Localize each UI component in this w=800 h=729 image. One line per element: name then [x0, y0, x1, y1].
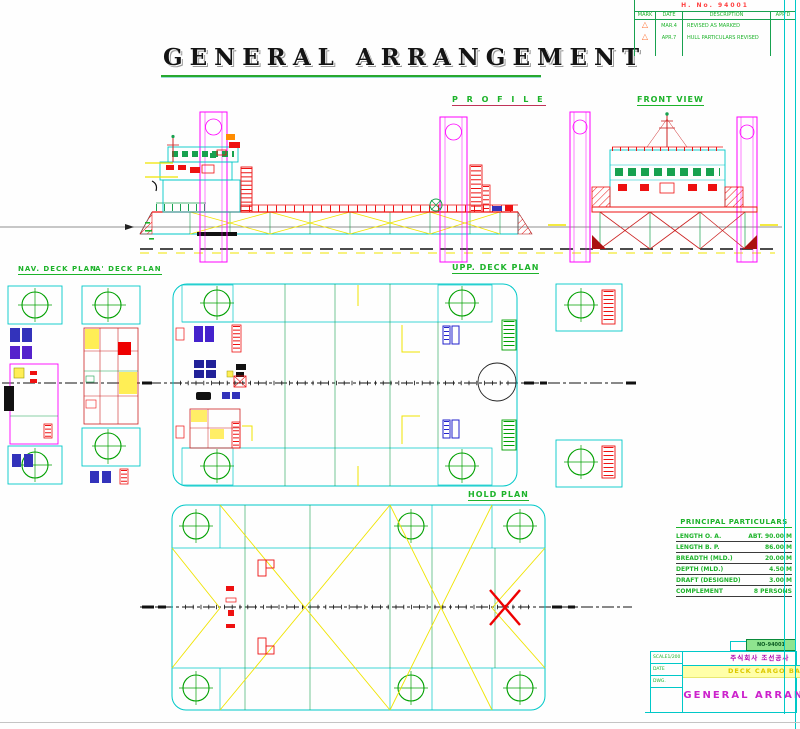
particular-name: LENGTH O. A. [676, 533, 721, 540]
vessel-type-subtitle: DECK CARGO BARGE [683, 666, 800, 678]
front-view-drawing [548, 112, 778, 262]
info-label: DWG. [653, 676, 666, 687]
info-row: DWG. [651, 676, 682, 688]
rev-col-date: DATE [656, 12, 682, 20]
particular-name: LENGTH B. P. [676, 544, 719, 551]
sheet-inner-border [784, 0, 785, 714]
page-title: GENERAL ARRANGEMENT [163, 44, 646, 71]
drawing-title: GENERAL ARRANGEMENT [683, 678, 800, 712]
title-block-info-column: SCALE 1/200 DATE DWG. [651, 652, 683, 712]
sheet-outer-border [795, 0, 796, 729]
info-row: SCALE 1/200 [651, 652, 682, 664]
particular-value: ABT. 90.00 M [748, 533, 792, 540]
particular-value: 3.00 M [769, 577, 792, 584]
particulars-row: DEPTH (MLD.) 4.50 M [676, 564, 792, 575]
profile-hull [140, 203, 532, 240]
rev-col-desc: DESCRIPTION [683, 12, 770, 20]
rev-desc: HULL PARTICULARS REVISED [683, 32, 770, 44]
particulars-row: LENGTH O. A. ABT. 90.00 M [676, 531, 792, 542]
info-value: 1/200 [667, 652, 680, 663]
rev-mark: △ [635, 32, 655, 44]
hull-number: H. No. 94001 [634, 0, 796, 12]
a-deck-plan-drawing [82, 286, 140, 484]
deck-plans-drawing [0, 276, 640, 492]
rev-appd [771, 20, 795, 32]
info-label: SCALE [653, 652, 667, 663]
particulars-row: COMPLEMENT 8 PERSONS [676, 586, 792, 597]
nav-deck-plan-drawing [4, 286, 62, 484]
particular-name: DEPTH (MLD.) [676, 566, 723, 573]
profile-and-front-view-drawing [0, 105, 800, 270]
doc-number-spacer-cell [730, 641, 747, 651]
particular-value: 4.50 M [769, 566, 792, 573]
revision-triangle-icon: △ [642, 20, 648, 29]
sheet-edge [0, 722, 800, 723]
rev-date: MAR.4 [656, 20, 682, 32]
particular-name: DRAFT (DESIGNED) [676, 577, 741, 584]
rev-mark: △ [635, 20, 655, 32]
title-underline [161, 75, 541, 78]
rev-col-mark: MARK [635, 12, 655, 20]
spud-guide-details [556, 284, 622, 487]
rev-appd [771, 32, 795, 44]
hold-plan-drawing [140, 498, 640, 716]
particulars-row: DRAFT (DESIGNED) 3.00 M [676, 575, 792, 586]
company-name: 주식회사 조선공사 [683, 652, 800, 665]
particular-value: 86.00 M [765, 544, 792, 551]
rev-col-appd: APP'D [771, 12, 795, 20]
title-block: SCALE 1/200 DATE DWG. 주식회사 조선공사 No. 1 Re… [650, 651, 797, 713]
title-block-bottom-border [645, 712, 796, 713]
particular-name: COMPLEMENT [676, 588, 723, 595]
doc-number-box: NO-94001 [746, 639, 796, 651]
revision-table: H. No. 94001 MARK △ △ DATE MAR.4 APR.7 D… [634, 0, 796, 56]
rev-desc: REVISED AS MARKED [683, 20, 770, 32]
upper-deck-plan-drawing [173, 284, 517, 486]
drawing-sheet: GENERAL ARRANGEMENT H. No. 94001 MARK △ … [0, 0, 800, 729]
particulars-title: PRINCIPAL PARTICULARS [676, 518, 792, 528]
particulars-row: LENGTH B. P. 86.00 M [676, 542, 792, 553]
info-label: DATE [653, 664, 665, 675]
rev-date: APR.7 [656, 32, 682, 44]
principal-particulars-table: PRINCIPAL PARTICULARS LENGTH O. A. ABT. … [676, 518, 792, 597]
profile-deckhouse [145, 134, 252, 212]
revision-triangle-icon: △ [642, 32, 648, 41]
particular-name: BREADTH (MLD.) [676, 555, 733, 562]
particulars-row: BREADTH (MLD.) 20.00 M [676, 553, 792, 564]
particular-value: 20.00 M [765, 555, 792, 562]
info-row [651, 688, 682, 712]
info-row: DATE [651, 664, 682, 676]
particular-value: 8 PERSONS [754, 588, 792, 595]
